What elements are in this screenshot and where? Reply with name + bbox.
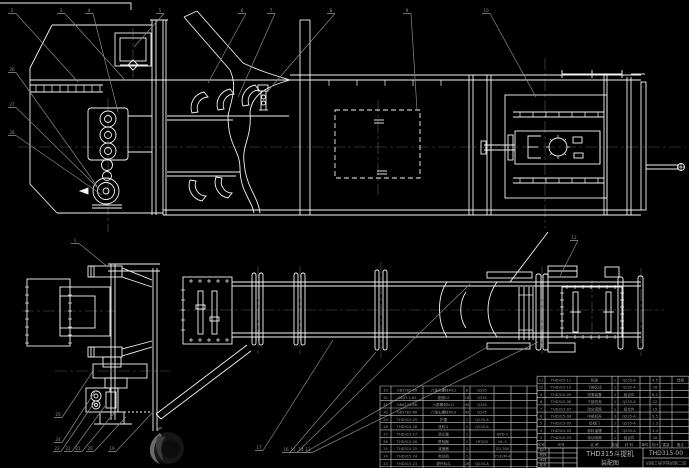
svg-text:21: 21 — [75, 446, 81, 451]
svg-text:机座: 机座 — [591, 378, 599, 383]
svg-text:HL-3: HL-3 — [498, 440, 506, 444]
svg-text:名 称: 名 称 — [590, 442, 599, 447]
svg-text:联轴器: 联轴器 — [438, 439, 449, 444]
svg-text:Q235-A: Q235-A — [475, 462, 489, 466]
svg-text:下部区段: 下部区段 — [587, 385, 602, 390]
svg-text:电动机: 电动机 — [438, 454, 449, 459]
svg-text:六角螺母M12: 六角螺母M12 — [432, 402, 454, 407]
svg-text:重量: 重量 — [662, 442, 670, 447]
svg-text:THD315-24: THD315-24 — [396, 455, 418, 459]
svg-text:8.2: 8.2 — [652, 393, 658, 397]
svg-text:Q235-A: Q235-A — [622, 379, 636, 383]
svg-text:减速器: 减速器 — [438, 446, 449, 451]
org-line: 机械工程学院机制二班 — [646, 460, 686, 466]
svg-text:下部机壳: 下部机壳 — [587, 399, 602, 404]
cad-drawing-screenshot: 2345678910262728112252423222120191716151… — [0, 0, 689, 468]
svg-text:40: 40 — [465, 411, 470, 415]
svg-text:1: 1 — [466, 425, 468, 429]
svg-text:12: 12 — [571, 235, 577, 240]
svg-text:11: 11 — [539, 379, 544, 383]
svg-text:3.4: 3.4 — [652, 429, 658, 433]
svg-text:检视门: 检视门 — [589, 421, 600, 426]
svg-text:1: 1 — [466, 433, 468, 437]
svg-text:1: 1 — [614, 422, 616, 426]
svg-text:ZQ-350: ZQ-350 — [496, 447, 510, 451]
svg-text:Q235: Q235 — [477, 403, 487, 407]
svg-text:Q235-A: Q235-A — [622, 422, 636, 426]
svg-text:25: 25 — [55, 412, 61, 417]
svg-text:垫圈12: 垫圈12 — [438, 395, 450, 400]
svg-text:THD315-08: THD315-08 — [550, 400, 572, 404]
svg-text:GB6170-86: GB6170-86 — [397, 403, 418, 407]
svg-text:28: 28 — [383, 425, 388, 429]
svg-text:1.2: 1.2 — [652, 422, 658, 426]
svg-text:10: 10 — [539, 386, 544, 390]
svg-text:1: 1 — [466, 447, 468, 451]
svg-text:22: 22 — [65, 446, 71, 451]
svg-text:焊接: 焊接 — [677, 378, 685, 383]
svg-text:THD315-05: THD315-05 — [550, 422, 571, 426]
svg-text:THD315-27: THD315-27 — [396, 433, 417, 437]
svg-text:Q235-A: Q235-A — [622, 414, 636, 418]
svg-text:23: 23 — [383, 462, 388, 466]
svg-text:数量: 数量 — [611, 442, 619, 447]
svg-text:NYD-2: NYD-2 — [497, 433, 508, 437]
svg-text:批准: 批准 — [539, 462, 547, 467]
svg-text:1: 1 — [614, 429, 616, 433]
svg-text:25: 25 — [383, 447, 388, 451]
svg-text:26: 26 — [383, 440, 388, 444]
svg-text:材 料: 材 料 — [625, 442, 634, 447]
svg-text:THD315-25: THD315-25 — [396, 447, 417, 451]
svg-text:15: 15 — [290, 447, 296, 452]
svg-text:THD315-09: THD315-09 — [550, 393, 572, 397]
svg-text:THD315-06: THD315-06 — [550, 414, 572, 418]
svg-text:组合件: 组合件 — [624, 392, 635, 397]
svg-text:4: 4 — [88, 8, 91, 13]
svg-text:Q235-A: Q235-A — [622, 429, 636, 433]
svg-text:33: 33 — [383, 389, 388, 393]
svg-text:16: 16 — [283, 447, 289, 452]
svg-text:1: 1 — [614, 436, 616, 440]
svg-text:代号: 代号 — [557, 442, 565, 447]
svg-text:27: 27 — [9, 102, 15, 107]
svg-text:1: 1 — [74, 238, 77, 243]
svg-text:1: 1 — [614, 393, 616, 397]
svg-text:3: 3 — [614, 414, 616, 418]
svg-text:THD315-29: THD315-29 — [396, 418, 418, 422]
svg-text:Q235: Q235 — [477, 389, 487, 393]
svg-text:提升料斗: 提升料斗 — [436, 461, 451, 466]
svg-text:27: 27 — [383, 433, 388, 437]
svg-text:1: 1 — [466, 418, 468, 422]
svg-text:3: 3 — [540, 436, 542, 440]
cad-canvas: 2345678910262728112252423222120191716151… — [0, 0, 689, 468]
svg-text:5: 5 — [159, 8, 162, 13]
svg-text:Q235-A: Q235-A — [475, 425, 489, 429]
svg-text:组合件: 组合件 — [624, 435, 635, 440]
svg-text:Q235: Q235 — [477, 396, 487, 400]
svg-text:Q235-A: Q235-A — [622, 386, 636, 390]
svg-text:总计: 总计 — [651, 442, 659, 447]
svg-text:审核: 审核 — [539, 457, 547, 462]
svg-text:24: 24 — [383, 455, 388, 459]
svg-text:26: 26 — [465, 462, 470, 466]
svg-text:6: 6 — [241, 8, 244, 13]
svg-text:20: 20 — [87, 446, 93, 451]
drawing-subtitle: 装配图 — [601, 459, 619, 467]
svg-text:40: 40 — [465, 403, 470, 407]
svg-text:THD315-26: THD315-26 — [396, 440, 418, 444]
svg-text:张紧装置: 张紧装置 — [587, 392, 602, 397]
svg-text:HT200: HT200 — [476, 440, 488, 444]
svg-text:改向滚筒: 改向滚筒 — [587, 406, 602, 411]
svg-text:设计: 设计 — [539, 447, 547, 452]
svg-text:14: 14 — [298, 447, 304, 452]
svg-text:THD315-23: THD315-23 — [396, 462, 417, 466]
svg-text:5: 5 — [540, 422, 542, 426]
svg-text:28: 28 — [9, 130, 15, 135]
drawing-number: THD315-00 — [648, 450, 683, 457]
svg-text:GB97.1-85: GB97.1-85 — [397, 396, 416, 400]
svg-text:2: 2 — [11, 8, 14, 13]
svg-text:1: 1 — [466, 455, 468, 459]
svg-text:26: 26 — [9, 67, 15, 72]
svg-text:13: 13 — [305, 447, 311, 452]
svg-text:卸料溜槽: 卸料溜槽 — [587, 428, 602, 433]
svg-text:8: 8 — [330, 8, 333, 13]
svg-text:19: 19 — [109, 446, 115, 451]
svg-text:3: 3 — [60, 8, 63, 13]
svg-text:THD315-03: THD315-03 — [550, 436, 571, 440]
svg-text:THD315-28: THD315-28 — [396, 425, 418, 429]
svg-text:1: 1 — [466, 440, 468, 444]
svg-text:THD315-04: THD315-04 — [550, 429, 572, 433]
svg-text:29: 29 — [383, 418, 388, 422]
svg-text:校核: 校核 — [539, 452, 547, 457]
svg-text:备注: 备注 — [677, 442, 685, 447]
svg-text:进料斗: 进料斗 — [438, 424, 449, 429]
svg-text:1: 1 — [614, 400, 616, 404]
svg-text:15: 15 — [653, 407, 658, 411]
svg-text:1: 1 — [614, 386, 616, 390]
svg-text:GB5782-86: GB5782-86 — [397, 411, 418, 415]
svg-text:中部机壳: 中部机壳 — [587, 413, 602, 418]
svg-text:Q235-A: Q235-A — [622, 400, 636, 404]
svg-text:THD315-11: THD315-11 — [550, 379, 571, 383]
svg-text:4.5: 4.5 — [652, 379, 658, 383]
svg-text:1: 1 — [614, 407, 616, 411]
svg-text:12: 12 — [653, 400, 658, 404]
svg-text:传动滚筒: 传动滚筒 — [587, 435, 602, 440]
svg-text:31: 31 — [383, 403, 388, 407]
svg-text:7: 7 — [540, 407, 542, 411]
svg-text:Q235: Q235 — [477, 411, 487, 415]
svg-text:7: 7 — [270, 8, 273, 13]
svg-text:23: 23 — [54, 446, 60, 451]
svg-text:THD315-10: THD315-10 — [550, 386, 572, 390]
svg-text:组合件: 组合件 — [624, 406, 635, 411]
svg-text:9.5: 9.5 — [652, 414, 658, 418]
svg-text:32: 32 — [383, 396, 388, 400]
svg-text:THD315-07: THD315-07 — [550, 407, 571, 411]
svg-text:Q235-A: Q235-A — [475, 418, 489, 422]
drawing-title: THD315斗提机 — [585, 449, 634, 458]
svg-text:24: 24 — [55, 437, 61, 442]
svg-text:10: 10 — [483, 8, 489, 13]
svg-text:1: 1 — [614, 379, 616, 383]
svg-text:GB5782-86: GB5782-86 — [397, 389, 418, 393]
svg-text:六角头螺栓M10: 六角头螺栓M10 — [431, 410, 457, 415]
svg-text:序号: 序号 — [537, 442, 545, 447]
svg-text:30: 30 — [383, 411, 388, 415]
svg-text:17: 17 — [256, 445, 262, 450]
svg-text:Y132M-4: Y132M-4 — [495, 455, 511, 459]
svg-text:六角头螺栓M12: 六角头螺栓M12 — [431, 388, 457, 393]
svg-text:18: 18 — [653, 436, 658, 440]
svg-text:16: 16 — [653, 386, 658, 390]
svg-text:护罩: 护罩 — [440, 417, 448, 422]
svg-text:单件: 单件 — [641, 442, 649, 447]
svg-text:16: 16 — [465, 396, 470, 400]
svg-text:逆止器: 逆止器 — [438, 432, 449, 437]
svg-text:9: 9 — [406, 8, 409, 13]
